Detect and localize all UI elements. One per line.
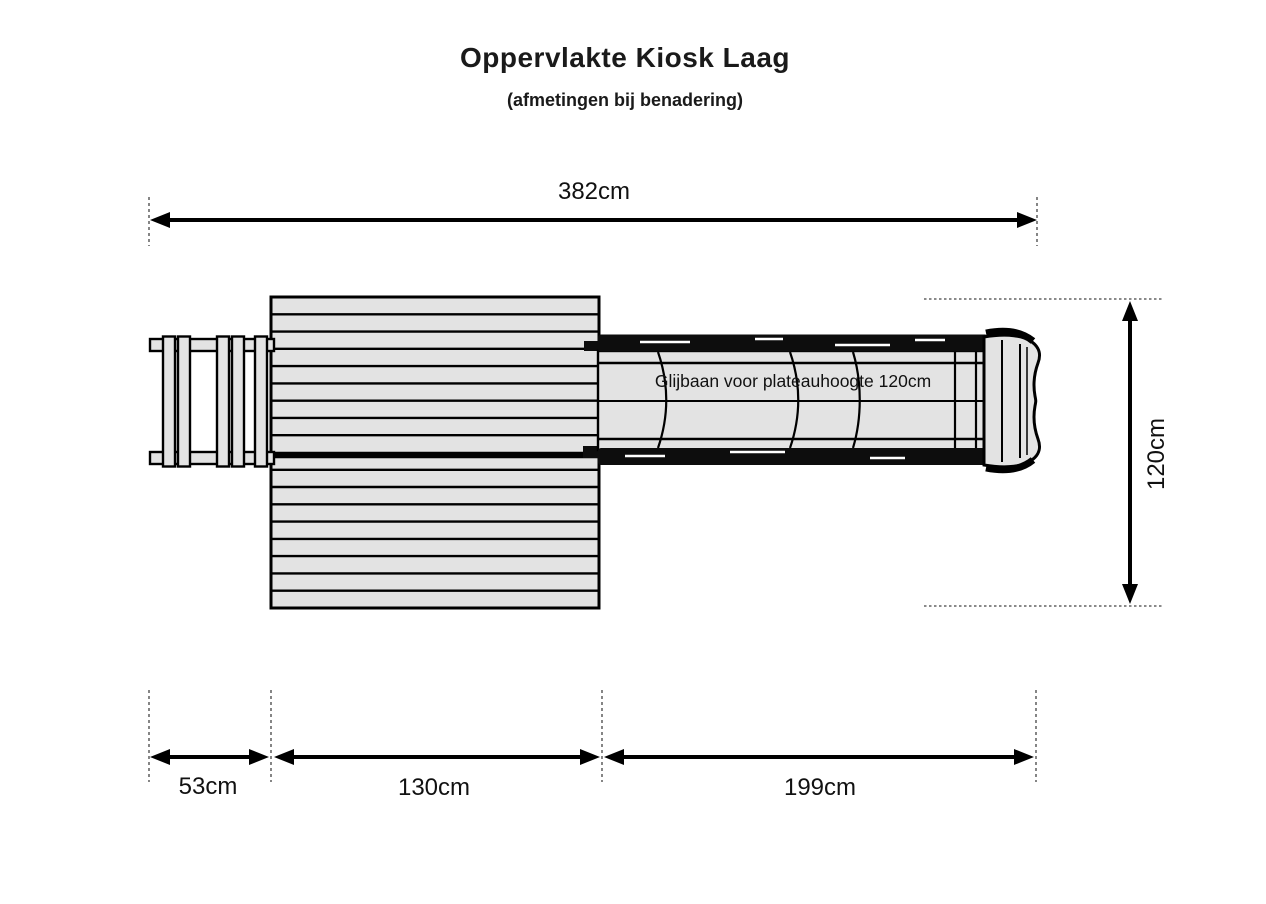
bottom-dimension — [149, 690, 1036, 782]
platform — [271, 297, 599, 608]
dimension-label-slide: 199cm — [720, 774, 920, 802]
dimension-label-total-width: 382cm — [494, 178, 694, 206]
slide-annotation: Glijbaan voor plateauhoogte 120cm — [600, 371, 986, 392]
dimension-label-platform: 130cm — [334, 774, 534, 802]
ladder-rung — [163, 337, 175, 467]
arrowhead-left — [274, 749, 294, 765]
diagram-page: Oppervlakte Kiosk Laag (afmetingen bij b… — [0, 0, 1266, 904]
arrowhead-right — [1017, 212, 1037, 228]
arrowhead-right — [249, 749, 269, 765]
dimension-label-depth: 120cm — [1143, 394, 1171, 514]
arrowhead-right — [1014, 749, 1034, 765]
dimension-label-ladder: 53cm — [108, 773, 308, 801]
ladder-rung — [255, 337, 267, 467]
ladder-rung — [232, 337, 244, 467]
slide-end-cap — [984, 331, 1040, 469]
ladder-rung — [217, 337, 229, 467]
floor-plan-drawing — [0, 0, 1266, 904]
slide — [583, 331, 1040, 469]
arrowhead-right — [580, 749, 600, 765]
ladder-rung — [178, 337, 190, 467]
arrowhead-down — [1122, 584, 1138, 604]
arrowhead-left — [150, 212, 170, 228]
arrowhead-left — [150, 749, 170, 765]
ladder-rungs — [163, 337, 267, 467]
slide-end-cap-body — [984, 335, 1040, 467]
ladder — [150, 337, 274, 467]
page-subtitle: (afmetingen bij benadering) — [325, 90, 925, 111]
page-title: Oppervlakte Kiosk Laag — [325, 42, 925, 74]
arrowhead-left — [604, 749, 624, 765]
arrowhead-up — [1122, 301, 1138, 321]
